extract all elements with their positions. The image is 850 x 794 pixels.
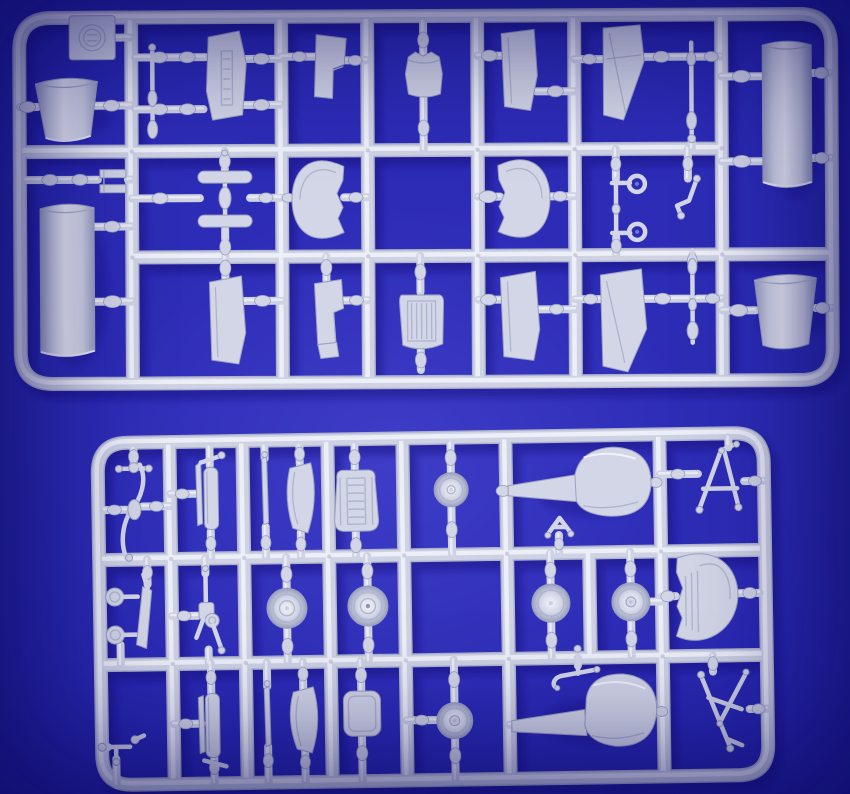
part-machine-gun — [195, 565, 225, 654]
sprue-bottom — [93, 431, 774, 793]
part-windscreen-wedge-2 — [290, 687, 318, 753]
part-manufacturer-tag — [69, 16, 115, 60]
part-clamp-bracket — [100, 170, 126, 193]
part-coaming-right — [498, 160, 550, 238]
part-wheel-4 — [612, 583, 651, 622]
part-cockpit-sidewall-4 — [314, 279, 343, 358]
part-stowage-box — [343, 691, 381, 737]
part-windscreen-wedge-1 — [287, 463, 315, 533]
sprue-top — [18, 12, 839, 392]
part-windscreen-panel-2 — [600, 269, 647, 372]
part-windscreen-panel-1 — [603, 25, 644, 120]
part-fuselage-tube-left — [40, 204, 95, 357]
part-exhaust-stack-2 — [198, 693, 226, 766]
part-cockpit-sidewall-2 — [314, 34, 346, 98]
part-wheel-1 — [267, 588, 308, 629]
part-engine-cowling-left — [35, 78, 97, 141]
part-a-frame-strut-1 — [695, 441, 742, 513]
part-fuselage-tube-right — [762, 41, 812, 188]
part-cockpit-sidewall-3 — [209, 276, 245, 364]
part-seat-back-2 — [500, 271, 539, 360]
photo-stage: Photograph of two light grey injection-m… — [0, 0, 850, 794]
part-radiator-panel — [400, 295, 444, 349]
part-seat-back-1 — [501, 29, 537, 110]
part-coaming-left — [292, 161, 344, 239]
part-wheel-small-1 — [434, 472, 469, 507]
part-blade-strip-2 — [264, 681, 271, 747]
part-belted-seat — [334, 470, 379, 532]
part-a-frame-strut-2 — [697, 669, 750, 752]
part-cockpit-sidewall-1 — [206, 31, 246, 120]
part-wheel-small-2 — [436, 702, 473, 739]
sprue-photo — [0, 0, 850, 794]
part-engine-cowling-right — [754, 274, 816, 349]
part-wheel-2 — [348, 586, 389, 627]
part-gun-yoke — [612, 176, 645, 240]
part-strut-rod-1 — [686, 43, 697, 143]
part-fuel-tank — [405, 52, 442, 97]
part-blade-strip-1 — [262, 452, 269, 525]
part-wheel-3 — [532, 584, 571, 623]
